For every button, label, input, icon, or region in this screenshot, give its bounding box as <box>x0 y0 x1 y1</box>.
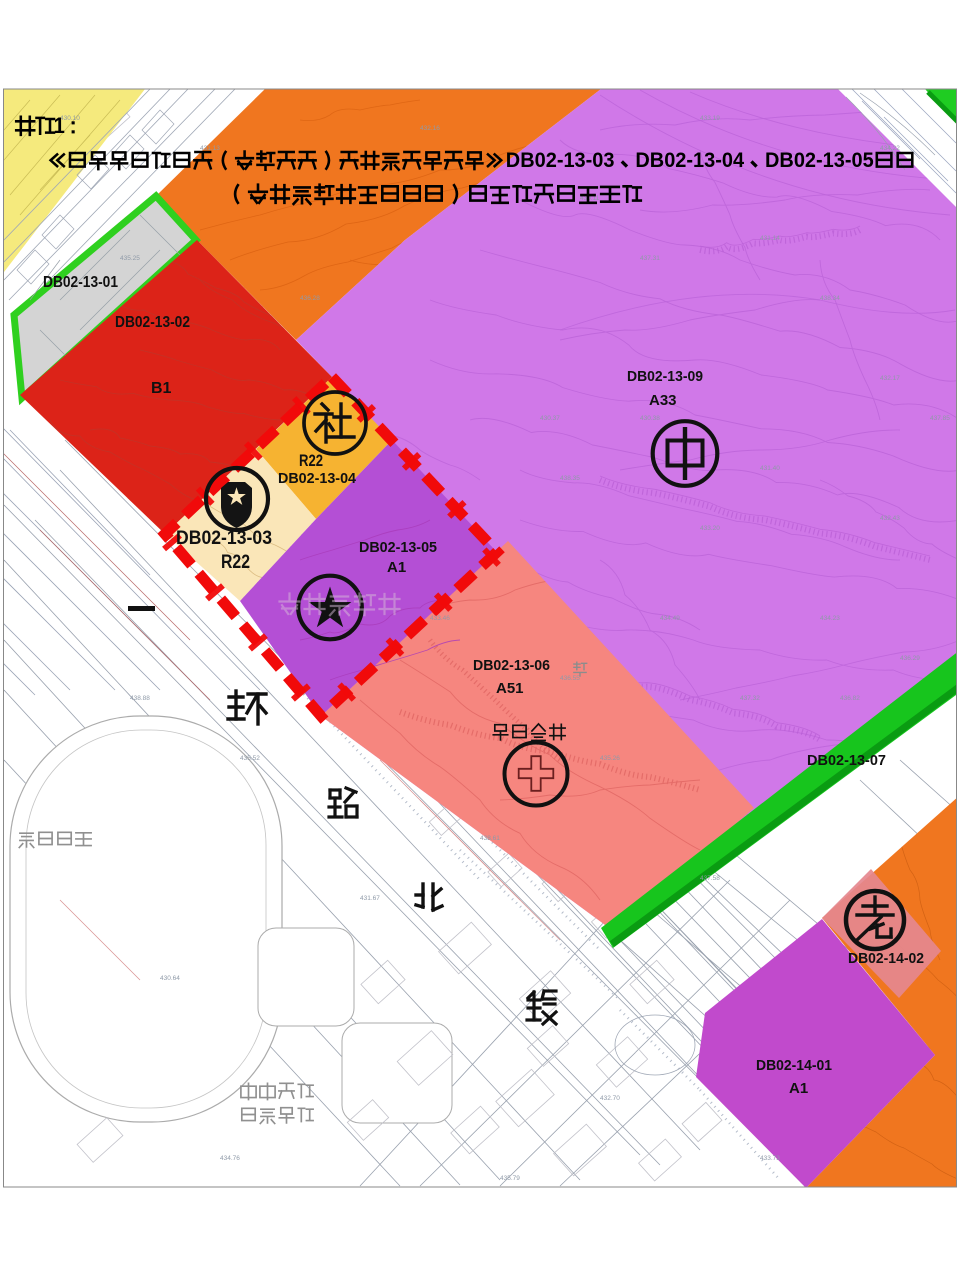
svg-text:432.70: 432.70 <box>600 1095 620 1102</box>
svg-text:A1: A1 <box>789 1080 808 1097</box>
svg-text:430.38: 430.38 <box>640 415 660 422</box>
svg-text:DB02-13-05: DB02-13-05 <box>765 149 874 172</box>
svg-text:433.73: 433.73 <box>760 1155 780 1162</box>
svg-text:DB02-13-06: DB02-13-06 <box>473 657 550 674</box>
svg-text:DB02-13-03: DB02-13-03 <box>506 149 615 172</box>
svg-text:A33: A33 <box>649 392 677 409</box>
svg-text:432.16: 432.16 <box>420 125 440 132</box>
svg-text:DB02-13-09: DB02-13-09 <box>627 368 703 385</box>
svg-text:431.67: 431.67 <box>360 895 380 902</box>
svg-text:436.82: 436.82 <box>840 695 860 702</box>
svg-text:436.28: 436.28 <box>300 295 320 302</box>
svg-text:438.61: 438.61 <box>480 835 500 842</box>
svg-text:434.76: 434.76 <box>220 1155 240 1162</box>
svg-text:434.49: 434.49 <box>660 615 680 622</box>
svg-text:434.23: 434.23 <box>820 615 840 622</box>
svg-text:437.32: 437.32 <box>740 695 760 702</box>
svg-text:436.55: 436.55 <box>560 675 580 682</box>
svg-text:DB02-13-03: DB02-13-03 <box>176 528 272 549</box>
svg-text:438.34: 438.34 <box>820 295 840 302</box>
svg-text:431.14: 431.14 <box>760 235 780 242</box>
svg-text:A51: A51 <box>496 680 524 697</box>
svg-text:433.46: 433.46 <box>430 615 450 622</box>
svg-text:437.85: 437.85 <box>930 415 950 422</box>
svg-text:436.29: 436.29 <box>900 655 920 662</box>
svg-text:430.64: 430.64 <box>160 975 180 982</box>
svg-text:435.25: 435.25 <box>120 255 140 262</box>
svg-text:435.79: 435.79 <box>500 1175 520 1182</box>
svg-text:A1: A1 <box>387 559 406 576</box>
svg-text:DB02-13-02: DB02-13-02 <box>115 314 190 331</box>
svg-text:431.40: 431.40 <box>760 465 780 472</box>
svg-text:438.35: 438.35 <box>560 475 580 482</box>
svg-text:DB02-13-04: DB02-13-04 <box>635 149 744 172</box>
svg-text:432.17: 432.17 <box>880 375 900 382</box>
svg-text:R22: R22 <box>299 452 323 470</box>
svg-text:435.26: 435.26 <box>600 755 620 762</box>
svg-text:430.37: 430.37 <box>540 415 560 422</box>
svg-text:435.52: 435.52 <box>240 755 260 762</box>
svg-text:437.58: 437.58 <box>700 875 720 882</box>
svg-text:434.22: 434.22 <box>880 145 900 152</box>
svg-text:DB02-14-01: DB02-14-01 <box>756 1057 832 1074</box>
svg-text:B1: B1 <box>151 380 172 397</box>
svg-text:437.31: 437.31 <box>640 255 660 262</box>
svg-text:DB02-13-05: DB02-13-05 <box>359 539 437 556</box>
svg-text:DB02-13-04: DB02-13-04 <box>278 470 357 487</box>
svg-text:DB02-14-02: DB02-14-02 <box>848 950 924 967</box>
svg-text:438.88: 438.88 <box>130 695 150 702</box>
svg-text:432.43: 432.43 <box>880 515 900 522</box>
svg-text:1: 1 <box>54 113 65 138</box>
svg-text:DB02-13-07: DB02-13-07 <box>807 752 886 769</box>
svg-text:DB02-13-01: DB02-13-01 <box>43 274 118 291</box>
svg-text:R22: R22 <box>221 552 250 573</box>
svg-text:433.19: 433.19 <box>700 115 720 122</box>
svg-text:433.20: 433.20 <box>700 525 720 532</box>
